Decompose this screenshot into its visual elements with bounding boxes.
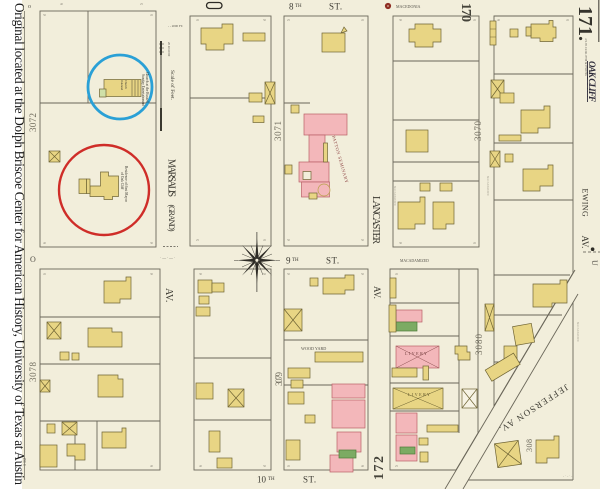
svg-text:EWING: EWING <box>581 189 590 218</box>
svg-text:40: 40 <box>199 464 203 468</box>
svg-text:45: 45 <box>43 272 47 276</box>
svg-text:40: 40 <box>361 464 365 468</box>
svg-text:30: 30 <box>150 241 154 245</box>
svg-text:30: 30 <box>399 18 403 22</box>
svg-text:- · - · -: - · - · - <box>563 474 573 478</box>
svg-text:AV.: AV. <box>372 286 382 299</box>
svg-text:3078: 3078 <box>28 362 38 383</box>
svg-text:3079: 3079 <box>274 372 284 387</box>
svg-text:of Oak Cliff: of Oak Cliff <box>120 172 124 190</box>
svg-text:ST.: ST. <box>326 256 340 266</box>
svg-text:TH: TH <box>268 477 275 482</box>
svg-text:45: 45 <box>473 18 477 22</box>
svg-text:TH: TH <box>292 258 299 263</box>
svg-text:50: 50 <box>263 18 267 22</box>
svg-text:25: 25 <box>196 238 200 242</box>
svg-text:4 S.W. COR. 8TH & EWING: 4 S.W. COR. 8TH & EWING <box>584 38 588 77</box>
svg-text:50: 50 <box>287 272 291 276</box>
svg-text:TH: TH <box>295 4 302 9</box>
svg-text:25: 25 <box>287 18 291 22</box>
svg-text:45: 45 <box>287 464 291 468</box>
svg-text:MARSALIS: MARSALIS <box>166 159 177 197</box>
svg-text:25: 25 <box>140 2 144 6</box>
svg-text:ST.: ST. <box>303 475 317 485</box>
svg-text:50: 50 <box>263 464 267 468</box>
svg-text:40: 40 <box>497 18 501 22</box>
svg-text:Oakland: Oakland <box>120 80 124 91</box>
svg-text:· — · — ·: · — · — · <box>160 256 175 260</box>
svg-text:LIVERY: LIVERY <box>408 392 431 397</box>
svg-text:45: 45 <box>150 13 154 17</box>
svg-text:Sunday Entertainment: Sunday Entertainment <box>141 74 145 106</box>
svg-text:172: 172 <box>372 456 387 480</box>
svg-text:45: 45 <box>395 272 399 276</box>
svg-text:AV.: AV. <box>163 288 174 302</box>
svg-text:- - 2000 FT.: - - 2000 FT. <box>168 24 183 28</box>
svg-text:1 1/2: 1 1/2 <box>22 458 27 466</box>
svg-text:MACEDONIA: MACEDONIA <box>396 4 421 9</box>
svg-text:3080: 3080 <box>474 334 484 356</box>
svg-text:30: 30 <box>399 241 403 245</box>
svg-text:40: 40 <box>43 241 47 245</box>
svg-text:45: 45 <box>473 241 477 245</box>
svg-text:50: 50 <box>361 238 365 242</box>
svg-text:20 40 60 80: 20 40 60 80 <box>167 42 171 57</box>
svg-text:308: 308 <box>525 439 534 452</box>
svg-text:30: 30 <box>199 272 203 276</box>
svg-text:o: o <box>28 4 31 10</box>
svg-text:AV.: AV. <box>580 236 590 249</box>
svg-text:MACADAMIZED: MACADAMIZED <box>393 186 396 206</box>
svg-text:LIVERY: LIVERY <box>405 351 428 356</box>
svg-text:U: U <box>590 260 599 266</box>
svg-text:45: 45 <box>263 238 267 242</box>
svg-text:30: 30 <box>150 272 154 276</box>
svg-text:10: 10 <box>257 475 267 485</box>
svg-text:ST.: ST. <box>329 2 343 12</box>
svg-text:(GRAND): (GRAND) <box>167 205 176 232</box>
svg-text:171.: 171. <box>574 6 596 41</box>
svg-text:LANCASTER: LANCASTER <box>370 196 381 244</box>
svg-text:8: 8 <box>289 2 294 12</box>
svg-text:45: 45 <box>196 18 200 22</box>
svg-text:45: 45 <box>361 18 365 22</box>
svg-text:50: 50 <box>287 238 291 242</box>
svg-text:Scale of Feet.: Scale of Feet. <box>169 70 176 101</box>
svg-text:45: 45 <box>566 18 570 22</box>
svg-text:3071: 3071 <box>273 121 283 141</box>
svg-text:170: 170 <box>458 3 473 22</box>
svg-text:MACADAMIZED: MACADAMIZED <box>486 176 489 196</box>
svg-text:50: 50 <box>361 272 365 276</box>
svg-text:MACADAMIZED: MACADAMIZED <box>576 322 579 342</box>
svg-text:50: 50 <box>263 272 267 276</box>
svg-text:3072: 3072 <box>28 113 38 132</box>
svg-text:25: 25 <box>395 464 399 468</box>
svg-text:WOOD YARD: WOOD YARD <box>301 346 326 351</box>
svg-text:3070: 3070 <box>473 121 483 142</box>
svg-text:40: 40 <box>150 464 154 468</box>
svg-text:MACADAMIZED: MACADAMIZED <box>400 259 429 263</box>
svg-text:9: 9 <box>286 256 291 266</box>
svg-text:O: O <box>30 255 36 264</box>
svg-text:40: 40 <box>60 2 64 6</box>
svg-text:50: 50 <box>43 13 47 17</box>
svg-text:Church: Church <box>124 80 128 89</box>
